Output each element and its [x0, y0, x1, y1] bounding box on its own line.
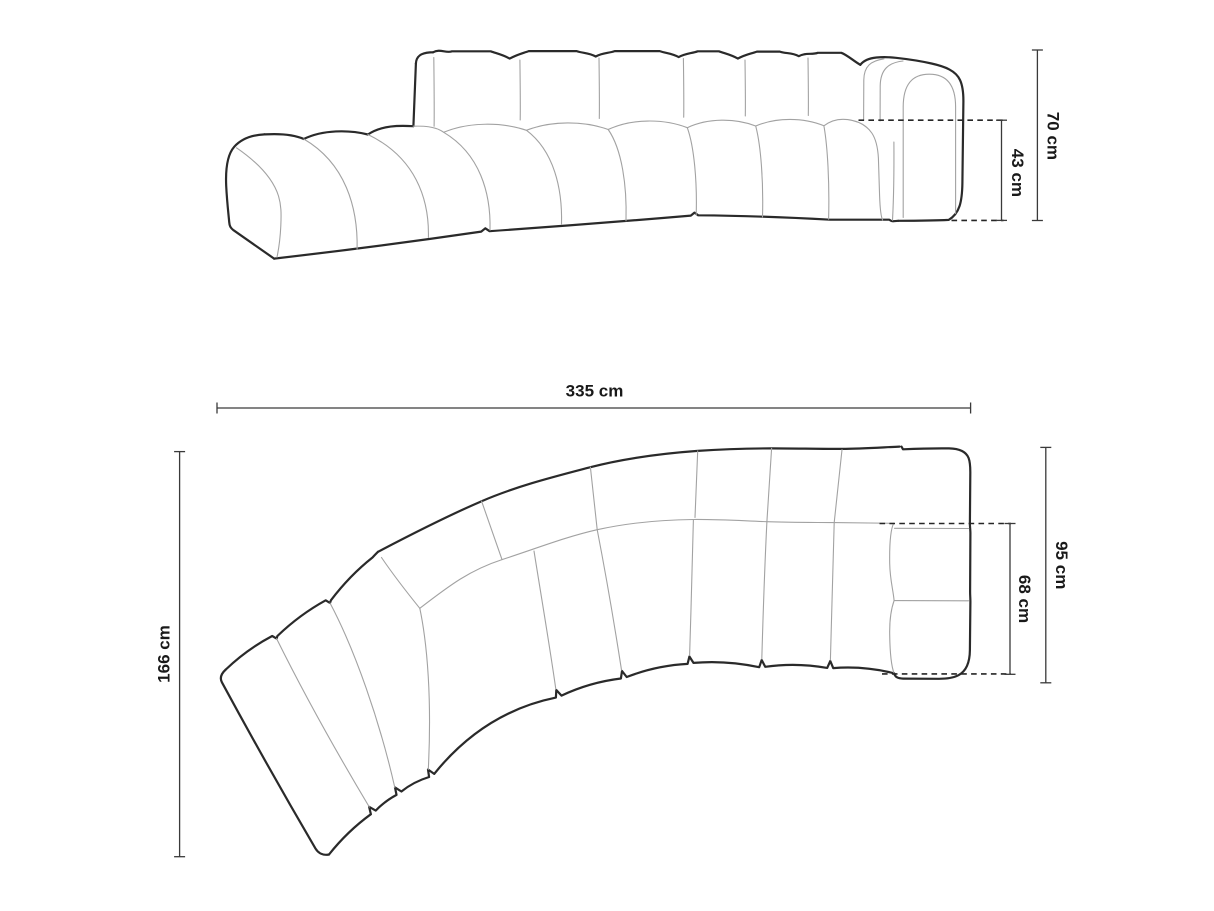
- svg-text:335 cm: 335 cm: [566, 382, 624, 401]
- svg-text:68 cm: 68 cm: [1015, 575, 1034, 623]
- svg-text:43 cm: 43 cm: [1008, 149, 1027, 197]
- svg-text:166 cm: 166 cm: [155, 625, 174, 683]
- svg-text:70 cm: 70 cm: [1044, 112, 1063, 160]
- svg-text:95 cm: 95 cm: [1052, 541, 1071, 589]
